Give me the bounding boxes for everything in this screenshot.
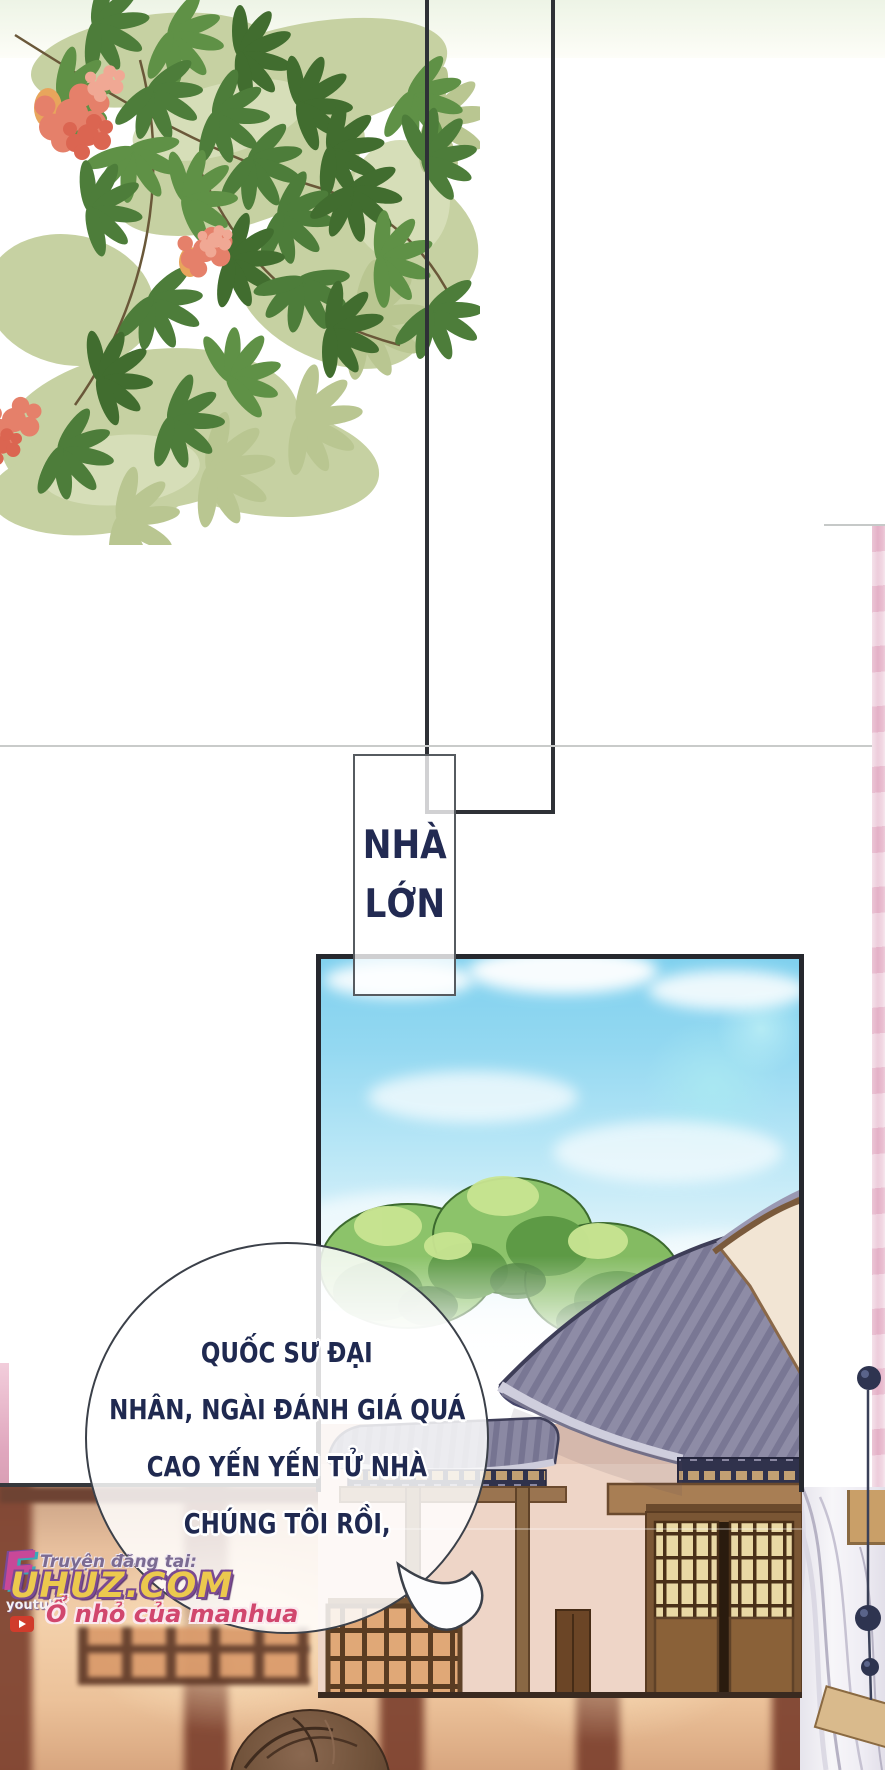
door-leaf-right [730,1522,793,1618]
door-leaf-left [655,1522,718,1618]
bubble-line-1: QUỐC SƯ ĐẠI [201,1324,373,1381]
caption-line-1: NHÀ [362,826,446,865]
watermark: F Truyện đăng tại: UHUZ.COM youtube Ổ nh… [0,1540,250,1640]
watermark-tagline: Ổ nhỏ của manhua [46,1600,298,1628]
caption-line-2: LỚN [364,885,445,924]
character-head [225,1706,395,1770]
caption-box: NHÀ LỚN [353,754,456,996]
foliage-art [0,0,480,545]
tall-panel-outline [425,0,555,814]
youtube-play-icon [10,1616,34,1632]
bottom-rail [318,1692,802,1698]
pink-curtain-strip [872,526,885,1490]
panel-divider-line [0,745,885,747]
bubble-line-2: NHÂN, NGÀI ĐÁNH GIÁ QUÁ [109,1381,465,1438]
comic-page: NHÀ LỚN QUỐC SƯ ĐẠI NHÂN, NGÀI ĐÁNH GIÁ … [0,0,885,1770]
gate-post [516,1487,529,1698]
bubble-line-3: CAO YẾN YẾN TỬ NHÀ [147,1438,427,1495]
left-pink-sliver [0,1363,9,1487]
bead-string [838,1360,885,1770]
